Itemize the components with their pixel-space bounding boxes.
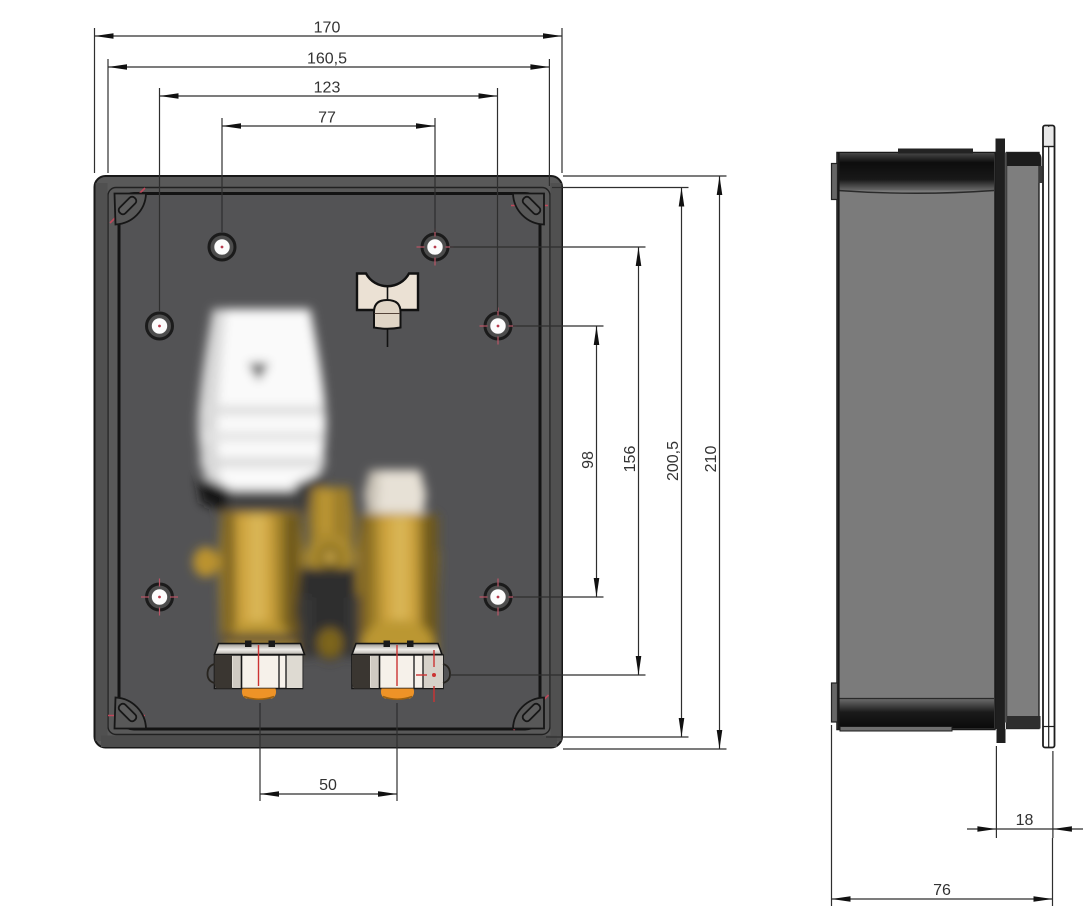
svg-text:50: 50 [319, 777, 337, 794]
svg-text:76: 76 [933, 882, 951, 899]
svg-text:160,5: 160,5 [307, 51, 347, 68]
svg-text:18: 18 [1016, 812, 1034, 829]
svg-text:77: 77 [318, 110, 336, 127]
svg-text:200,5: 200,5 [665, 441, 682, 481]
svg-text:156: 156 [622, 446, 639, 473]
svg-text:210: 210 [703, 446, 720, 473]
svg-text:98: 98 [580, 451, 597, 469]
svg-text:123: 123 [314, 80, 341, 97]
svg-text:170: 170 [314, 20, 341, 37]
